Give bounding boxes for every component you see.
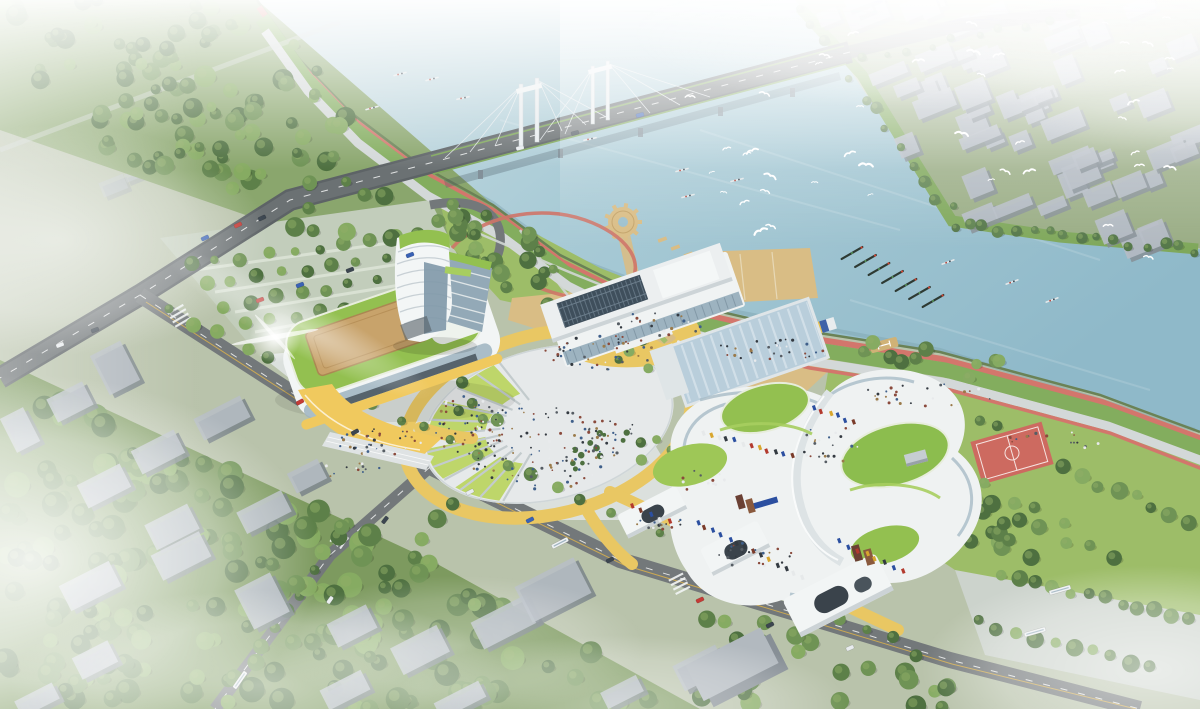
mall-b	[648, 369, 982, 605]
architectural-rendering	[0, 0, 1200, 709]
scene	[0, 0, 1200, 709]
